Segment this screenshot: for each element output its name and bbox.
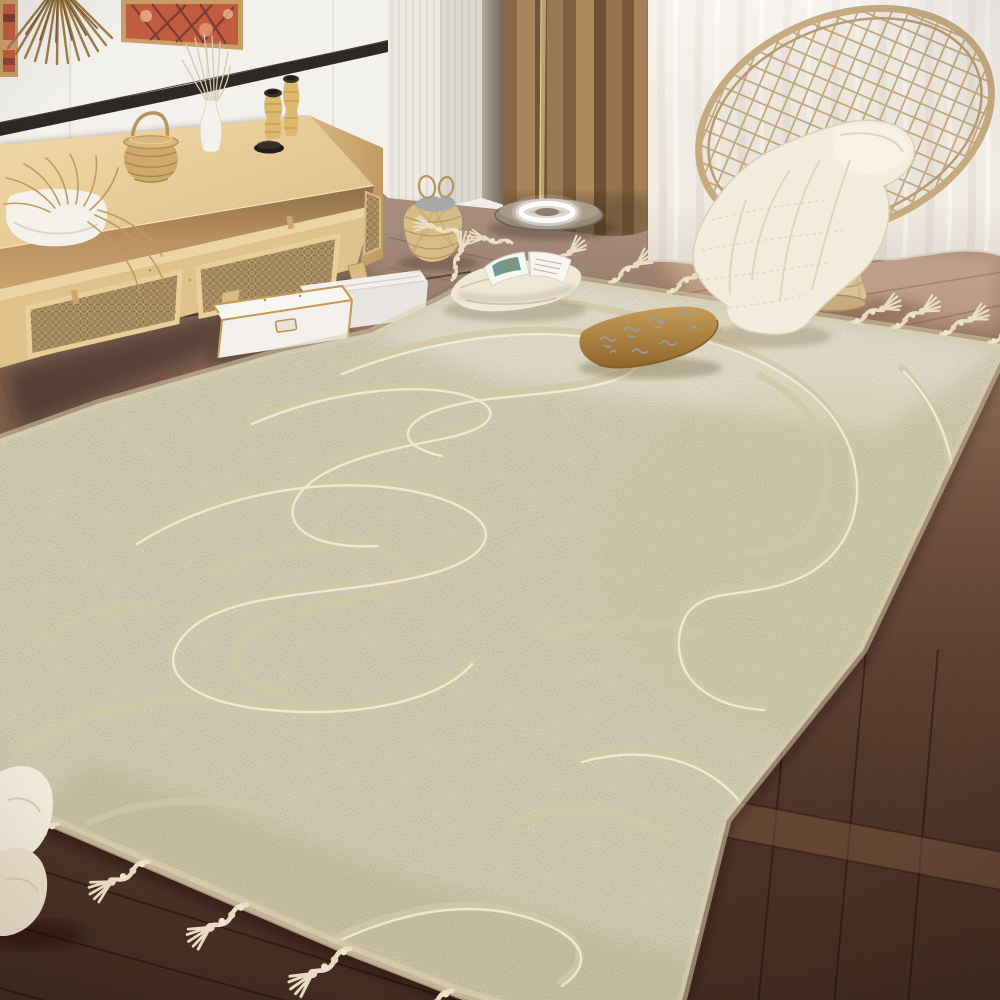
vignette <box>0 0 1000 1000</box>
living-room-photo <box>0 0 1000 1000</box>
